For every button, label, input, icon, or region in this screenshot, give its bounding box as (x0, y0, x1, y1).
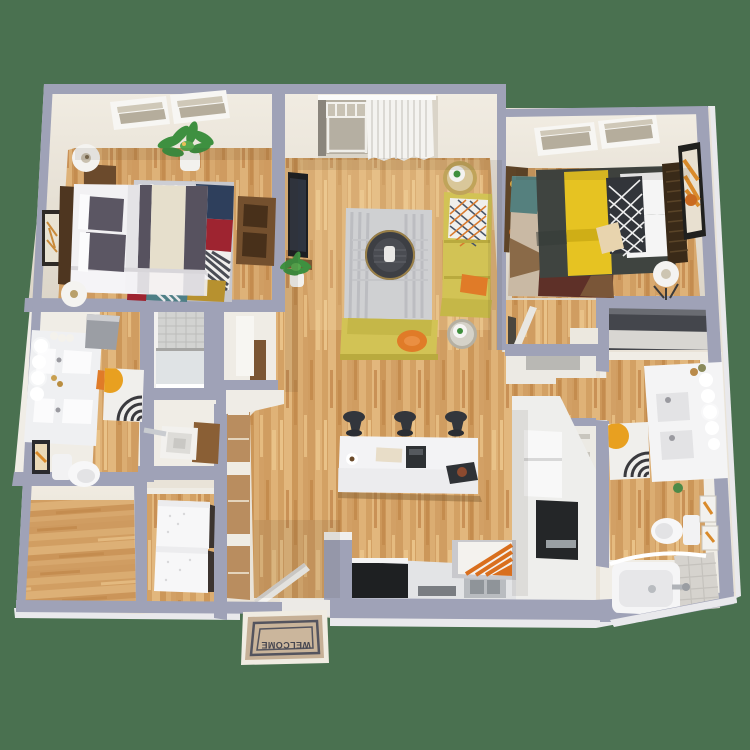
svg-text:WELCOME: WELCOME (261, 640, 311, 650)
